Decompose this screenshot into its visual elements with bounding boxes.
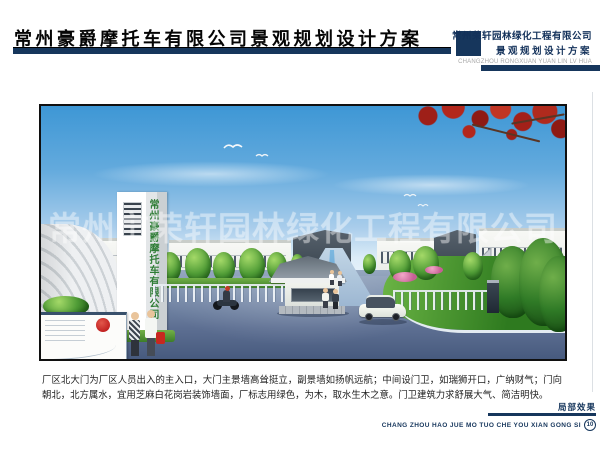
presentation-sheet: 常州豪爵摩托车有限公司景观规划设计方案 常州荣轩园林绿化工程有限公司 景观规划设… bbox=[0, 0, 600, 463]
firm-subtitle: 景观规划设计方案 bbox=[452, 43, 592, 57]
flower-shrub bbox=[425, 266, 443, 274]
plan-text-lines bbox=[45, 320, 85, 342]
car bbox=[359, 295, 406, 323]
gate-fence-right bbox=[393, 290, 487, 310]
footer-pinyin: CHANG ZHOU HAO JUE MO TUO CHE YOU XIAN G… bbox=[382, 419, 596, 431]
effect-label: 局部效果 bbox=[558, 401, 596, 413]
tree bbox=[463, 252, 483, 280]
title-underline-bar bbox=[13, 47, 451, 54]
cloud bbox=[91, 161, 331, 187]
pedestrian-foreground bbox=[129, 312, 140, 356]
rendering-scene: 常州豪爵摩托车有限公司 bbox=[41, 106, 565, 359]
bird-icon bbox=[403, 192, 417, 198]
tree bbox=[185, 248, 211, 282]
inset-plan-card bbox=[39, 312, 127, 361]
caption-paragraph: 厂区北大门为厂区人员出入的主入口，大门主景墙高耸挺立，副景墙如扬帆远航；中间设门… bbox=[42, 373, 562, 402]
effect-label-rule bbox=[488, 413, 596, 416]
bird-icon bbox=[223, 142, 243, 150]
rendering-image: 常州豪爵摩托车有限公司 bbox=[39, 104, 567, 361]
tree bbox=[363, 254, 376, 274]
watermark-text: 常州市荣轩园林绿化工程有限公司 bbox=[41, 202, 565, 250]
bird-icon bbox=[255, 152, 269, 158]
page-number-badge: 10 bbox=[584, 419, 596, 431]
firm-accent-bar bbox=[481, 65, 600, 71]
motorcycle bbox=[213, 284, 241, 310]
cloud bbox=[331, 174, 531, 196]
maple-branch bbox=[409, 104, 567, 172]
tree bbox=[539, 256, 567, 332]
firm-block: 常州荣轩园林绿化工程有限公司 景观规划设计方案 CHANGZHOU RONGXU… bbox=[452, 28, 592, 65]
tree bbox=[413, 246, 439, 280]
page-edge-line bbox=[592, 92, 593, 392]
pedestrian bbox=[332, 289, 339, 309]
firm-name: 常州荣轩园林绿化工程有限公司 bbox=[452, 28, 592, 42]
tree bbox=[239, 248, 265, 282]
red-stamp-icon bbox=[96, 318, 110, 332]
bag bbox=[156, 332, 165, 344]
pedestrian bbox=[322, 288, 329, 308]
pedestrian bbox=[337, 271, 342, 286]
flower-shrub bbox=[393, 272, 417, 282]
footer-pinyin-text: CHANG ZHOU HAO JUE MO TUO CHE YOU XIAN G… bbox=[382, 422, 581, 429]
pedestrian bbox=[329, 270, 334, 285]
gate-post bbox=[487, 280, 499, 313]
plan-curve bbox=[46, 345, 116, 360]
